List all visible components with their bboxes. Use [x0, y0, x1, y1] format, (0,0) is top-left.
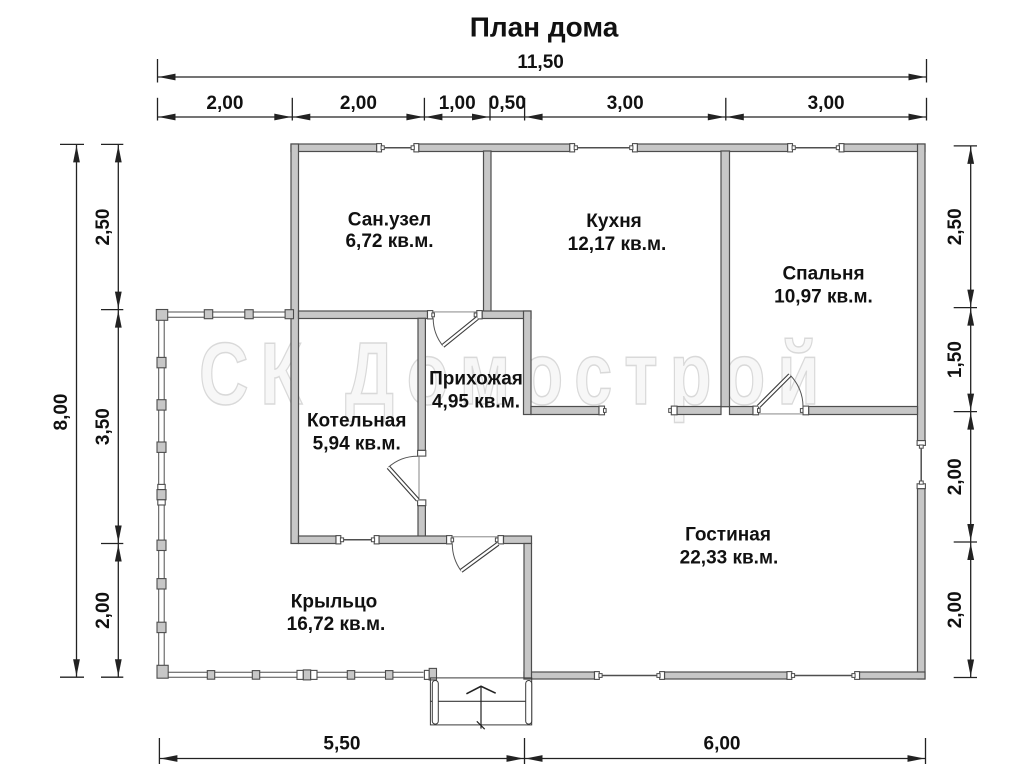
svg-text:Спальня: Спальня — [782, 264, 864, 285]
svg-text:6,00: 6,00 — [704, 734, 741, 755]
svg-text:8,00: 8,00 — [51, 394, 72, 431]
svg-text:2,00: 2,00 — [945, 591, 966, 628]
svg-text:Сан.узел: Сан.узел — [348, 210, 431, 231]
svg-text:0,50: 0,50 — [489, 93, 526, 114]
svg-text:6,72 кв.м.: 6,72 кв.м. — [345, 231, 433, 252]
svg-text:11,50: 11,50 — [517, 52, 564, 73]
svg-text:2,00: 2,00 — [93, 592, 114, 629]
svg-text:3,00: 3,00 — [808, 93, 845, 114]
svg-text:План дома: План дома — [470, 12, 619, 43]
svg-text:5,50: 5,50 — [323, 734, 360, 755]
svg-text:2,50: 2,50 — [93, 209, 114, 246]
svg-text:Гостиная: Гостиная — [685, 525, 771, 546]
svg-text:22,33 кв.м.: 22,33 кв.м. — [680, 548, 779, 569]
svg-text:1,00: 1,00 — [439, 93, 476, 114]
svg-text:Котельная: Котельная — [307, 410, 406, 431]
svg-text:Кухня: Кухня — [586, 211, 642, 232]
svg-text:2,00: 2,00 — [206, 93, 243, 114]
svg-text:4,95 кв.м.: 4,95 кв.м. — [432, 392, 520, 413]
svg-text:3,50: 3,50 — [93, 408, 114, 445]
svg-text:2,00: 2,00 — [945, 458, 966, 495]
svg-text:12,17 кв.м.: 12,17 кв.м. — [568, 234, 667, 255]
svg-text:3,00: 3,00 — [607, 93, 644, 114]
svg-text:5,94 кв.м.: 5,94 кв.м. — [313, 433, 401, 454]
svg-text:16,72 кв.м.: 16,72 кв.м. — [287, 614, 386, 635]
svg-text:Прихожая: Прихожая — [429, 369, 523, 390]
svg-text:1,50: 1,50 — [945, 341, 966, 378]
svg-text:2,50: 2,50 — [945, 208, 966, 245]
svg-text:10,97 кв.м.: 10,97 кв.м. — [774, 287, 873, 308]
svg-text:Крыльцо: Крыльцо — [291, 592, 377, 613]
svg-text:2,00: 2,00 — [340, 93, 377, 114]
